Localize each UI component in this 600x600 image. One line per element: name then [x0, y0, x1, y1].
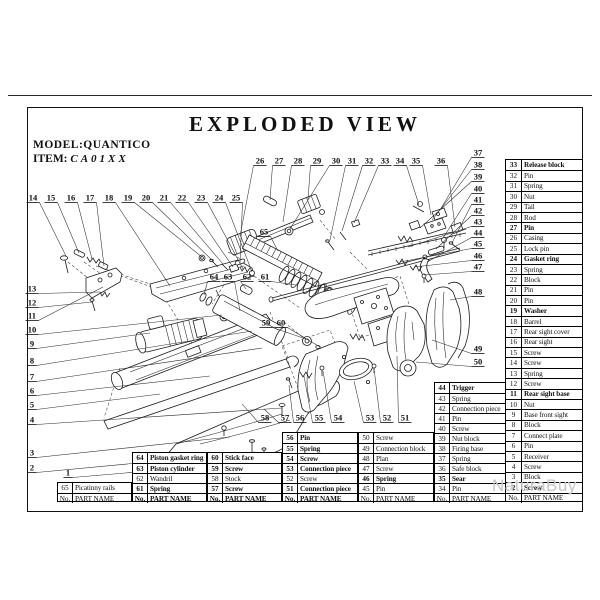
part-row: 58Stock — [208, 473, 281, 483]
callout-63: 63 — [224, 272, 233, 282]
part-name: Piston cylinder — [148, 465, 206, 473]
callout-34: 34 — [396, 156, 405, 166]
part-name: Rear sight cover — [522, 328, 582, 336]
part-no: 49 — [359, 444, 374, 453]
part-no: 46 — [359, 474, 374, 483]
callout-13: 13 — [28, 284, 37, 294]
part-name: Connection piece — [298, 465, 357, 473]
part-no: 33 — [506, 160, 522, 170]
part-row: 21Pin — [506, 285, 582, 295]
part-no: No. — [133, 494, 148, 503]
part-name: Safe block — [450, 465, 505, 473]
part-name: Spring — [450, 395, 505, 403]
callout-54: 54 — [334, 413, 343, 423]
part-name: Screw — [223, 465, 281, 473]
part-no: 59 — [208, 464, 223, 473]
part-row: 49Connection block — [359, 443, 433, 453]
part-no: 24 — [506, 255, 522, 264]
part-no: 65 — [58, 483, 73, 493]
callout-30: 30 — [332, 156, 341, 166]
parts-table-t65: 65Picatinny railsNo.PART NAME — [57, 482, 132, 502]
part-name: Block — [522, 276, 582, 284]
part-row: 24Gasket ring — [506, 254, 582, 264]
callout-15: 15 — [47, 193, 56, 203]
part-name: Firing base — [450, 445, 505, 453]
callout-21: 21 — [160, 193, 169, 203]
part-name: Release block — [522, 161, 582, 169]
part-name: Spring — [522, 182, 582, 190]
callout-16: 16 — [67, 193, 76, 203]
part-no: No. — [58, 494, 73, 503]
part-name: Gasket ring — [522, 255, 582, 263]
part-row: 12Screw — [506, 378, 582, 388]
part-name: Base front sight — [522, 411, 582, 419]
parts-table-t51: 56Pin55Spring54Screw53Connection piece52… — [282, 432, 358, 502]
part-name: Rod — [522, 214, 582, 222]
part-name: Screw — [522, 380, 582, 388]
part-name: Spring — [450, 455, 505, 463]
part-name: Spring — [148, 485, 206, 493]
callout-12: 12 — [28, 298, 37, 308]
part-row: 22Block — [506, 274, 582, 284]
part-name: Screw — [223, 485, 281, 493]
callout-29: 29 — [313, 156, 322, 166]
part-row: 41Pin — [435, 413, 505, 423]
part-row: 47Screw — [359, 463, 433, 473]
part-no: 34 — [435, 484, 450, 493]
callout-50: 50 — [474, 357, 483, 367]
part-name: Nut — [522, 193, 582, 201]
part-no: 12 — [506, 379, 522, 388]
part-name: Pin — [522, 442, 582, 450]
part-no: 6 — [506, 442, 522, 451]
part-name: Screw — [374, 465, 433, 473]
callout-62: 62 — [243, 272, 252, 282]
callout-19: 19 — [124, 193, 133, 203]
callout-20: 20 — [142, 193, 151, 203]
callout-51: 51 — [401, 413, 410, 423]
callout-38: 38 — [474, 160, 483, 170]
part-row: 63Piston cylinder — [133, 463, 206, 473]
callout-1: 1 — [66, 468, 70, 478]
part-row: 31Spring — [506, 181, 582, 191]
part-row: 46Spring — [359, 473, 433, 483]
part-no: 30 — [506, 192, 522, 201]
part-no: 57 — [208, 484, 223, 493]
part-name: Casing — [522, 234, 582, 242]
part-name: Pin — [522, 297, 582, 305]
part-name: Rear sight — [522, 338, 582, 346]
part-name: Trigger — [450, 384, 505, 392]
part-name: Spring — [522, 266, 582, 274]
part-name: Picatinny rails — [73, 484, 131, 492]
part-row: 56Pin — [283, 433, 357, 443]
part-name: Nut block — [450, 435, 505, 443]
part-row: 27Pin — [506, 222, 582, 232]
part-name: Plan — [374, 455, 433, 463]
part-no: 56 — [283, 433, 298, 443]
exploded-view-sheet: EXPLODED VIEW MODEL:QUANTICO ITEM: CA01X… — [0, 0, 600, 600]
callout-6: 6 — [30, 386, 34, 396]
part-row: 39Nut block — [435, 433, 505, 443]
part-row: 10Nut — [506, 399, 582, 409]
part-no: 52 — [283, 474, 298, 483]
part-name: Screw — [374, 434, 433, 442]
callout-35: 35 — [412, 156, 421, 166]
part-no: 40 — [435, 424, 450, 433]
callout-5: 5 — [30, 400, 34, 410]
callout-57: 57 — [281, 413, 290, 423]
callout-42: 42 — [474, 206, 483, 216]
callout-41: 41 — [474, 195, 483, 205]
callout-45: 45 — [474, 239, 483, 249]
part-name: Connect plate — [522, 432, 582, 440]
part-name: Connection piece — [298, 485, 357, 493]
part-no: 43 — [435, 394, 450, 403]
part-name: Screw — [522, 349, 582, 357]
part-no: 11 — [506, 390, 522, 399]
part-no: 22 — [506, 275, 522, 284]
part-no: 50 — [359, 433, 374, 443]
part-no: 37 — [435, 454, 450, 463]
part-row: 7Connect plate — [506, 430, 582, 440]
callout-23: 23 — [197, 193, 206, 203]
part-name: Nut — [522, 401, 582, 409]
callout-18: 18 — [105, 193, 114, 203]
part-name: Lock pin — [522, 245, 582, 253]
callout-59: 59 — [262, 318, 271, 328]
callout-40: 40 — [474, 184, 483, 194]
part-name: Washer — [522, 307, 582, 315]
part-row: 37Spring — [435, 453, 505, 463]
part-row: 51Connection piece — [283, 483, 357, 493]
part-no: 63 — [133, 464, 148, 473]
part-name: Wandril — [148, 475, 206, 483]
part-row: 15Screw — [506, 347, 582, 357]
part-name: Pin — [450, 415, 505, 423]
callout-2: 2 — [30, 463, 34, 473]
callout-43: 43 — [474, 217, 483, 227]
trigger-parts — [326, 202, 463, 284]
parts-table-t57: 60Stick face59Screw58Stock57ScrewNo.PART… — [207, 452, 282, 502]
part-no: 44 — [435, 383, 450, 393]
part-name: Spring — [298, 445, 357, 453]
part-row: 26Casing — [506, 233, 582, 243]
callout-58: 58 — [261, 413, 270, 423]
callout-22: 22 — [178, 193, 187, 203]
part-name: Connection block — [374, 445, 433, 453]
callout-3: 3 — [30, 448, 34, 458]
part-name: Pin — [374, 485, 433, 493]
callout-36: 36 — [437, 156, 446, 166]
callout-49: 49 — [474, 344, 483, 354]
part-no: 19 — [506, 306, 522, 315]
callout-52: 52 — [383, 413, 392, 423]
part-no: 14 — [506, 358, 522, 367]
table-header-row: No.PART NAME — [208, 493, 281, 503]
part-no: 8 — [506, 421, 522, 430]
callout-53: 53 — [366, 413, 375, 423]
part-no: 62 — [133, 474, 148, 483]
callout-61: 61 — [261, 272, 270, 282]
part-name: Receiver — [522, 453, 582, 461]
part-no: 45 — [359, 484, 374, 493]
part-no: 16 — [506, 338, 522, 347]
part-no: 54 — [283, 454, 298, 463]
part-row: 14Screw — [506, 357, 582, 367]
part-name: Stock — [223, 475, 281, 483]
part-name: Connection piece — [450, 405, 505, 413]
parts-table-t02: 33Release block32Pin31Spring30Nut29Tail2… — [505, 159, 583, 502]
callout-11: 11 — [28, 311, 36, 321]
part-no: No. — [359, 494, 374, 503]
callout-56: 56 — [296, 413, 305, 423]
part-row: 8Block — [506, 420, 582, 430]
part-no: 7 — [506, 431, 522, 440]
part-no: 51 — [283, 484, 298, 493]
part-no: 31 — [506, 182, 522, 191]
part-no: 10 — [506, 400, 522, 409]
callout-32: 32 — [365, 156, 374, 166]
part-name: Block — [522, 421, 582, 429]
part-row: 38Firing base — [435, 443, 505, 453]
part-row: 55Spring — [283, 443, 357, 453]
callout-14: 14 — [29, 193, 38, 203]
callout-7: 7 — [30, 372, 35, 382]
callout-4: 4 — [30, 415, 35, 425]
part-name: Piston gasket ring — [148, 454, 206, 462]
part-row: 18Barrel — [506, 316, 582, 326]
part-name: Spring — [522, 370, 582, 378]
part-row: 28Rod — [506, 212, 582, 222]
part-row: 23Spring — [506, 264, 582, 274]
part-row: 11Rear sight base — [506, 389, 582, 399]
part-name: Rear sight base — [522, 390, 582, 398]
part-row: 32Pin — [506, 170, 582, 180]
part-row: 54Screw — [283, 453, 357, 463]
part-no: 61 — [133, 484, 148, 493]
callout-39: 39 — [474, 172, 483, 182]
part-no: No. — [208, 494, 223, 503]
callout-48: 48 — [474, 287, 483, 297]
part-no: 53 — [283, 464, 298, 473]
part-name: PART NAME — [223, 495, 281, 503]
part-no: 42 — [435, 404, 450, 413]
part-name: Barrel — [522, 318, 582, 326]
callout-25: 25 — [232, 193, 241, 203]
part-no: 28 — [506, 213, 522, 222]
part-row: 5Receiver — [506, 451, 582, 461]
part-name: Pin — [522, 224, 582, 232]
part-row: 9Base front sight — [506, 409, 582, 419]
part-row: 25Lock pin — [506, 243, 582, 253]
part-row: 60Stick face — [208, 453, 281, 463]
part-name: Screw — [298, 475, 357, 483]
part-no: 9 — [506, 410, 522, 419]
part-no: 39 — [435, 434, 450, 443]
part-no: 25 — [506, 244, 522, 253]
table-header-row: No.PART NAME — [58, 493, 131, 503]
part-no: 64 — [133, 453, 148, 463]
table-header-row: No.PART NAME — [283, 493, 357, 503]
part-row: 43Spring — [435, 393, 505, 403]
watermark: NaturaBuy — [492, 476, 577, 496]
part-name: Screw — [522, 463, 582, 471]
part-name: Screw — [522, 359, 582, 367]
part-no: 38 — [435, 444, 450, 453]
part-row: 36Safe block — [435, 463, 505, 473]
part-no: 13 — [506, 369, 522, 378]
callout-44: 44 — [474, 228, 483, 238]
part-no: 58 — [208, 474, 223, 483]
callout-8: 8 — [30, 356, 34, 366]
part-row: 16Rear sight — [506, 337, 582, 347]
callout-60: 60 — [277, 318, 286, 328]
part-name: PART NAME — [148, 495, 206, 503]
callout-31: 31 — [348, 156, 357, 166]
part-no: 23 — [506, 265, 522, 274]
part-no: 35 — [435, 474, 450, 483]
callout-64: 64 — [210, 272, 219, 282]
callout-46: 46 — [474, 251, 483, 261]
part-row: 50Screw — [359, 433, 433, 443]
part-row: 20Pin — [506, 295, 582, 305]
part-row: 19Washer — [506, 305, 582, 315]
callout-55: 55 — [315, 413, 324, 423]
callout-47: 47 — [474, 262, 483, 272]
part-name: Tail — [522, 203, 582, 211]
part-row: 17Rear sight cover — [506, 326, 582, 336]
callout-9: 9 — [30, 339, 34, 349]
callout-24: 24 — [215, 193, 224, 203]
part-row: 62Wandril — [133, 473, 206, 483]
part-name: Screw — [450, 425, 505, 433]
part-no: 48 — [359, 454, 374, 463]
part-no: 20 — [506, 296, 522, 305]
part-row: 13Spring — [506, 368, 582, 378]
part-no: 55 — [283, 444, 298, 453]
part-row: 52Screw — [283, 473, 357, 483]
parts-table-t45: 50Screw49Connection block48Plan47Screw46… — [358, 432, 434, 502]
part-no: 17 — [506, 327, 522, 336]
part-no: 32 — [506, 171, 522, 180]
parts-table-t61: 64Piston gasket ring63Piston cylinder62W… — [132, 452, 207, 502]
part-row: 64Piston gasket ring — [133, 453, 206, 463]
part-name: Spring — [374, 475, 433, 483]
part-name: PART NAME — [73, 495, 131, 503]
table-header-row: No.PART NAME — [359, 493, 433, 503]
part-row: 53Connection piece — [283, 463, 357, 473]
table-header-row: No.PART NAME — [133, 493, 206, 503]
callout-10: 10 — [28, 325, 37, 335]
callout-26: 26 — [256, 156, 265, 166]
part-row: 40Screw — [435, 423, 505, 433]
part-row: 33Release block — [506, 160, 582, 170]
part-row: 45Pin — [359, 483, 433, 493]
callout-17: 17 — [86, 193, 95, 203]
part-no: 41 — [435, 414, 450, 423]
part-no: 26 — [506, 234, 522, 243]
part-row: 6Pin — [506, 441, 582, 451]
part-row: 42Connection piece — [435, 403, 505, 413]
part-name: Pin — [522, 172, 582, 180]
part-name: Pin — [522, 286, 582, 294]
part-name: Screw — [298, 455, 357, 463]
part-no: 18 — [506, 317, 522, 326]
part-no: 15 — [506, 348, 522, 357]
part-name: Pin — [298, 434, 357, 442]
part-row: 48Plan — [359, 453, 433, 463]
part-no: 21 — [506, 286, 522, 295]
part-row: 29Tail — [506, 202, 582, 212]
callout-37: 37 — [474, 148, 483, 158]
part-no: No. — [283, 494, 298, 503]
part-row: 61Spring — [133, 483, 206, 493]
part-row: 65Picatinny rails — [58, 483, 131, 493]
part-no: 47 — [359, 464, 374, 473]
callout-28: 28 — [294, 156, 303, 166]
part-name: PART NAME — [374, 495, 433, 503]
part-row: 57Screw — [208, 483, 281, 493]
part-no: 27 — [506, 223, 522, 232]
part-row: 44Trigger — [435, 383, 505, 393]
part-row: 30Nut — [506, 191, 582, 201]
small-parts-left — [60, 249, 122, 311]
part-no: 36 — [435, 464, 450, 473]
callout-33: 33 — [381, 156, 390, 166]
part-no: 4 — [506, 462, 522, 471]
part-no: 60 — [208, 453, 223, 463]
part-no: 29 — [506, 203, 522, 212]
callout-65: 65 — [260, 227, 269, 237]
part-no: 5 — [506, 452, 522, 461]
part-row: 59Screw — [208, 463, 281, 473]
part-row: 4Screw — [506, 461, 582, 471]
callout-27: 27 — [275, 156, 284, 166]
part-no: No. — [435, 494, 450, 503]
part-name: Stick face — [223, 454, 281, 462]
part-name: PART NAME — [298, 495, 357, 503]
